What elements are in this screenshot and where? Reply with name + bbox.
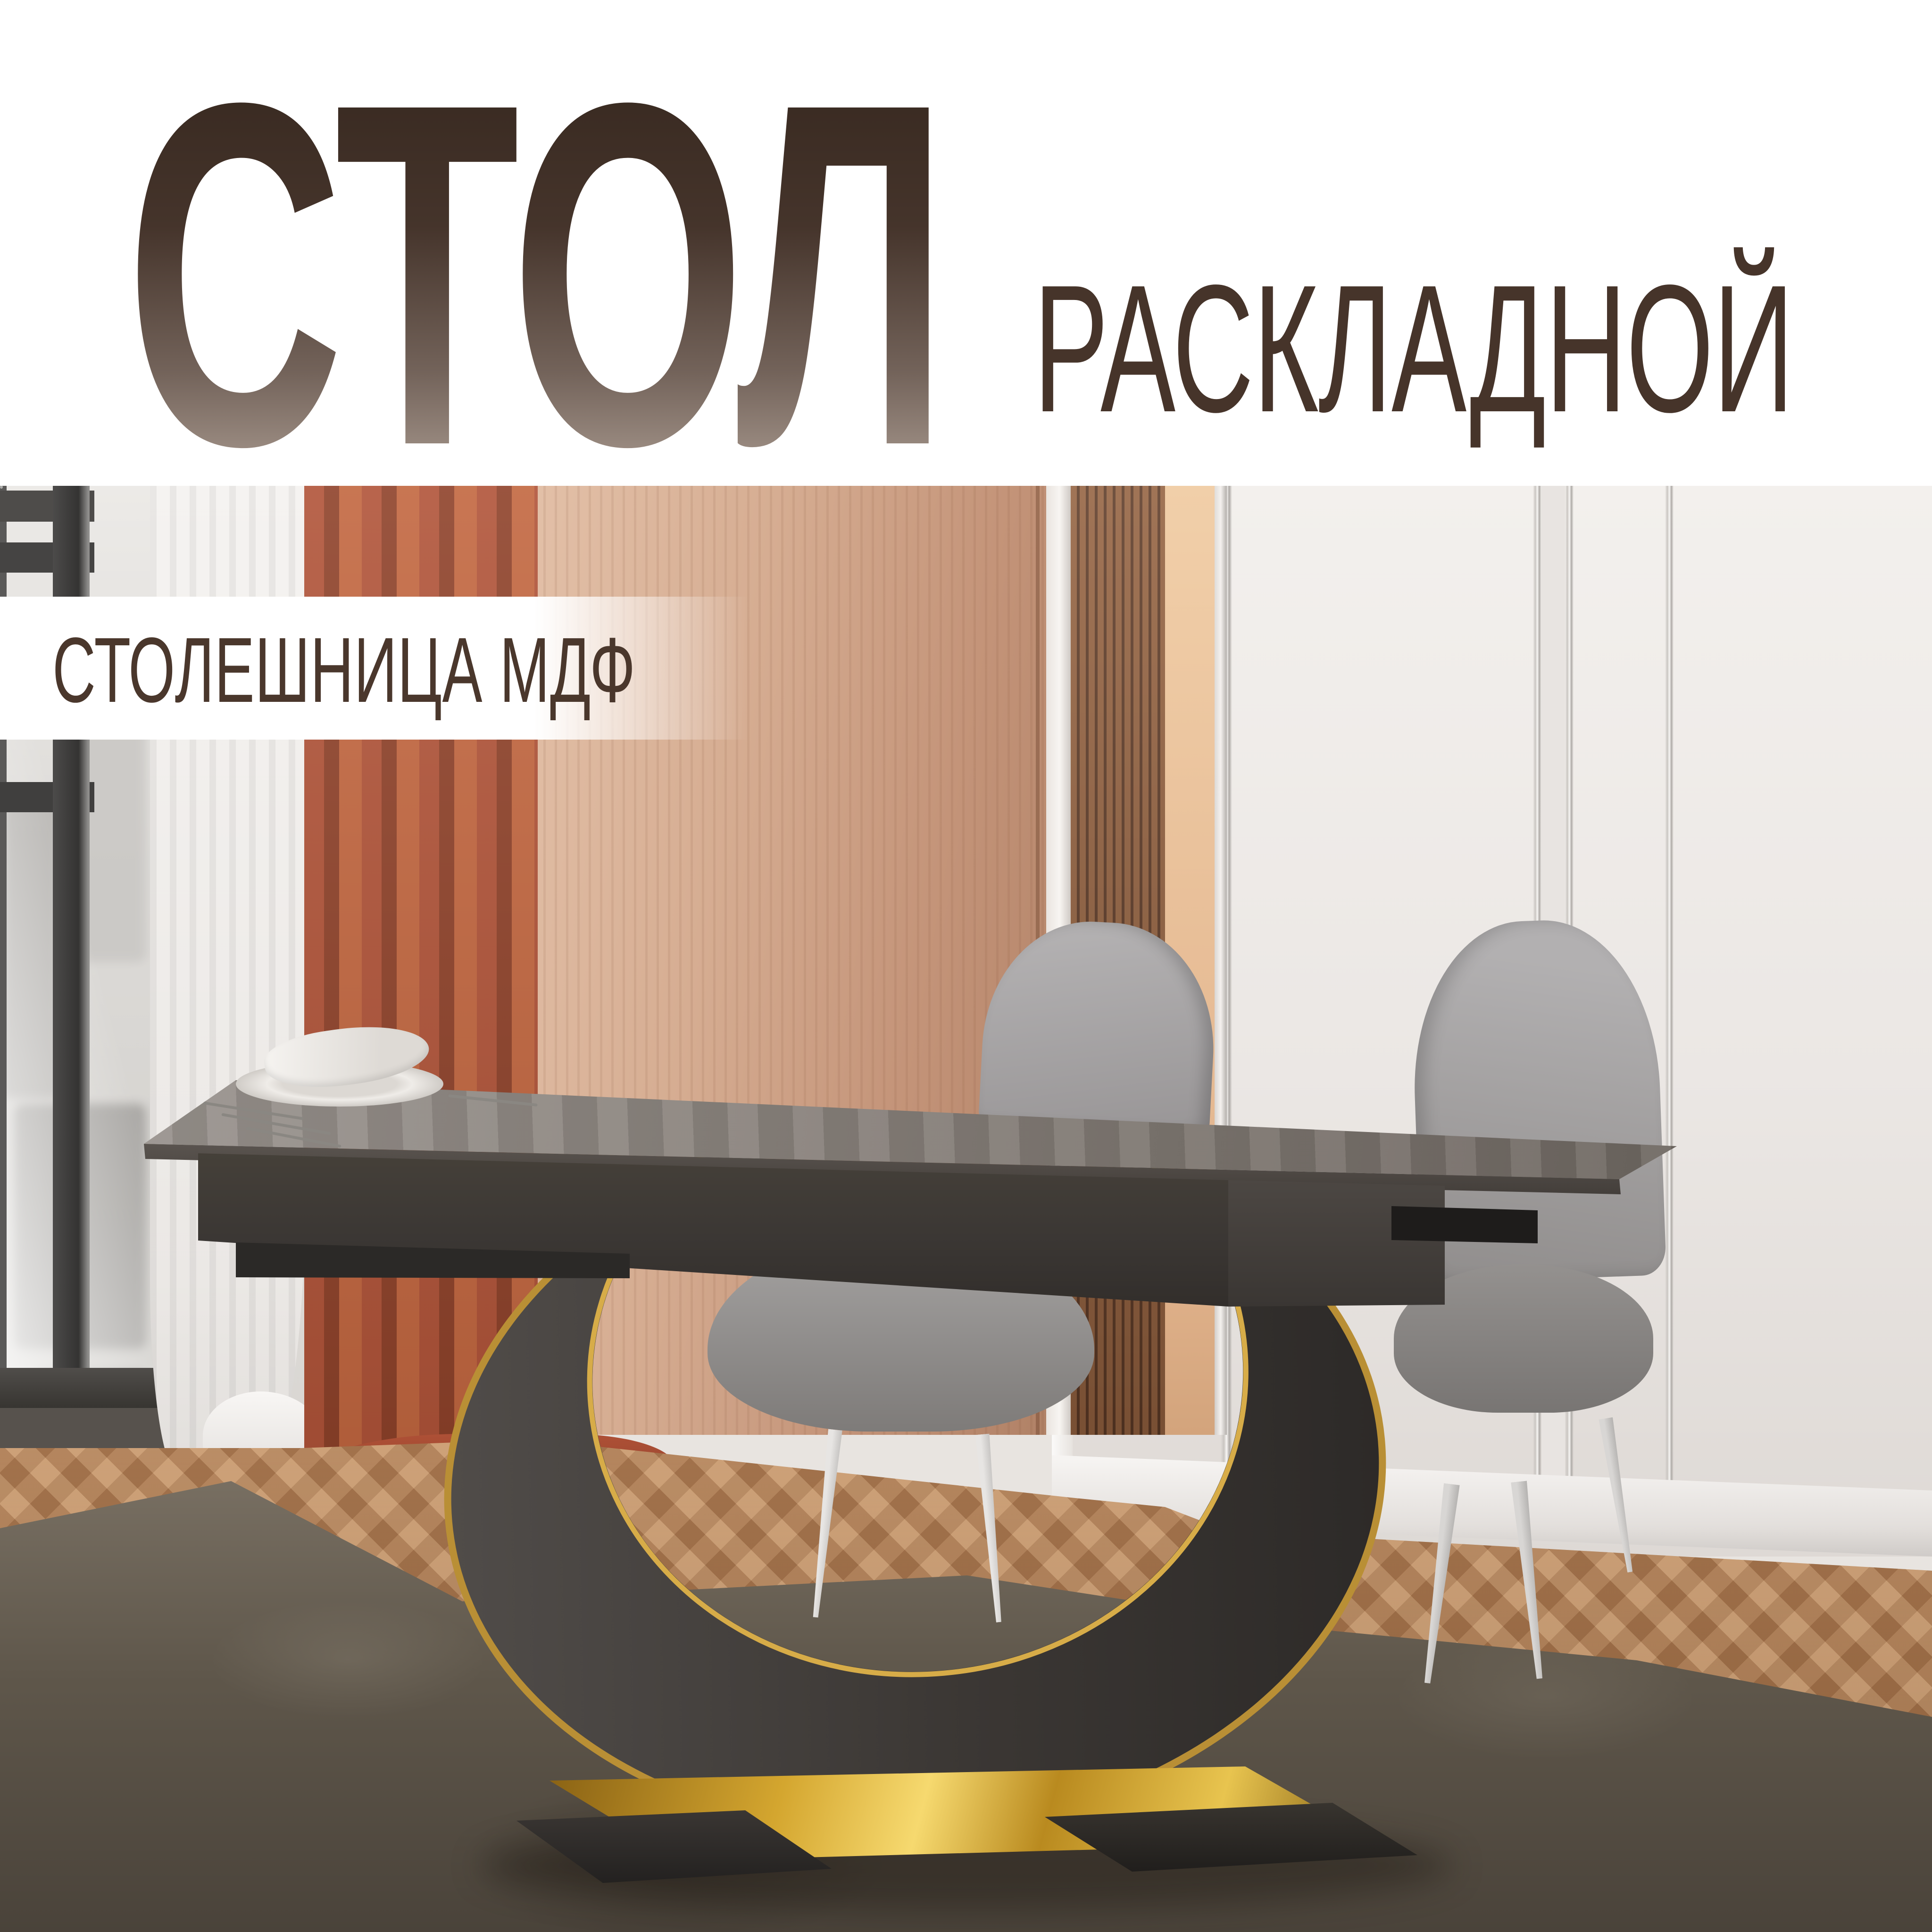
- window-sill: [0, 1368, 179, 1411]
- table-apron-extension: [1228, 1180, 1445, 1307]
- headline-title: СТОЛ: [125, 31, 947, 519]
- feature-banner: СТОЛЕШНИЦА МДФ: [0, 597, 764, 740]
- wall-molding: [1665, 486, 1674, 1524]
- product-card: { "page": { "background": "#ffffff", "wi…: [0, 0, 1932, 1932]
- feature-banner-label: СТОЛЕШНИЦА МДФ: [52, 624, 636, 716]
- headline-subtitle: РАСКЛАДНОЙ: [1033, 258, 1793, 439]
- table-extension-slot: [1391, 1206, 1538, 1243]
